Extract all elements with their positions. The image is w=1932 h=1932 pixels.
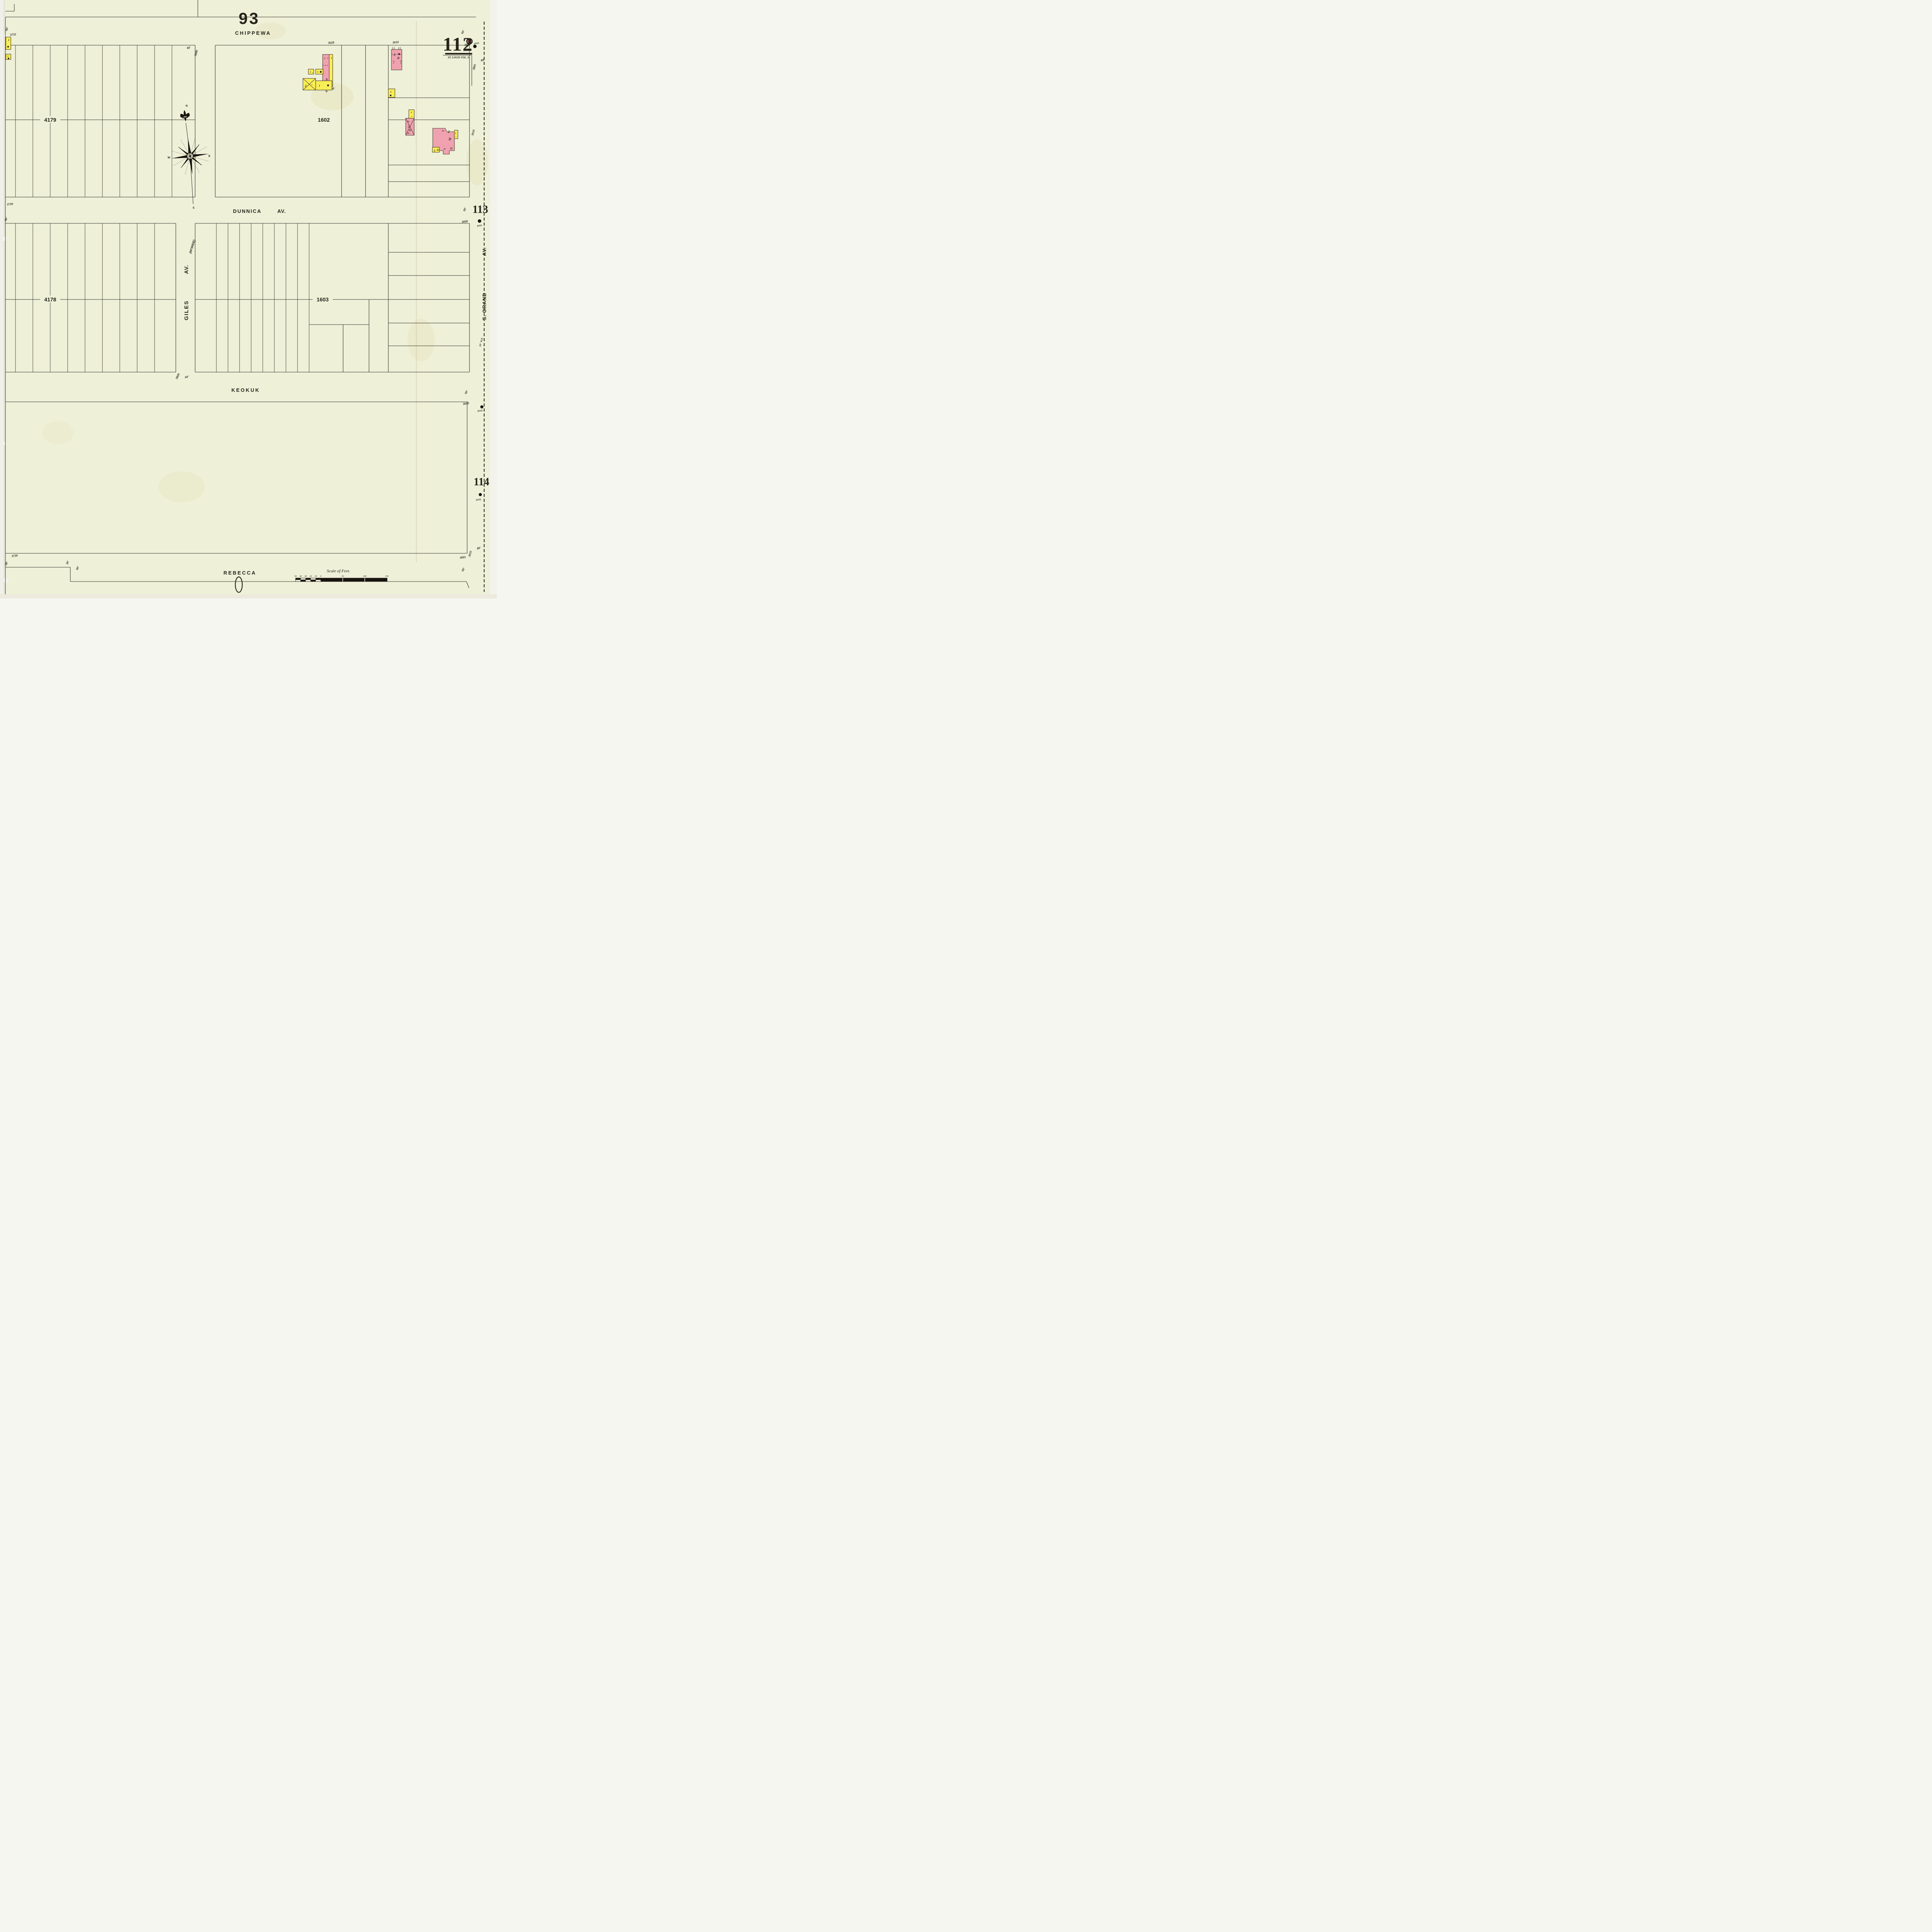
building-footprint <box>388 89 395 97</box>
scale-bar-tick-label: 40 <box>299 575 302 578</box>
paper-stain <box>158 471 205 502</box>
building-label: 1 <box>319 84 320 87</box>
map-canvas: 111xD211x12x12D12812611xBR2BRBR2DBR21x60… <box>0 0 497 599</box>
hydrant-dot-icon <box>480 405 483 408</box>
street-name-label: REBECCA <box>223 570 256 576</box>
building-dot <box>7 46 9 48</box>
scale-bar-checker-cell <box>296 578 301 580</box>
building-label: 6 <box>400 62 401 64</box>
building-label: 1 <box>317 71 318 73</box>
street-name-label: S. GRAND <box>481 293 487 320</box>
hydrant-dot-icon <box>479 493 482 496</box>
building-label: BR <box>407 133 410 134</box>
scale-bar-tick-label: 30 <box>304 575 307 578</box>
block-number-label: 1602 <box>318 117 330 123</box>
paper-nick <box>3 578 9 583</box>
house-number-label: 3628 <box>328 41 335 44</box>
paper-nick <box>3 236 7 241</box>
building-label: BR <box>407 121 410 122</box>
house-number-label: 3732 <box>9 32 16 37</box>
building-dot <box>327 85 329 87</box>
scale-bar-solid-segment <box>321 578 387 582</box>
block-number-label: 4179 <box>44 117 56 123</box>
sheet-number-underline <box>445 53 472 54</box>
building-dot <box>320 71 322 73</box>
scale-bar-tick-label: 50 <box>294 575 297 578</box>
building-dot <box>8 58 9 59</box>
street-name-label: AV. <box>481 247 487 256</box>
street-name-label: CHIPPEWA <box>235 30 271 36</box>
compass-label-north: N <box>185 105 187 107</box>
building-label: D <box>448 137 451 141</box>
scale-bar-checker-cell <box>301 578 306 580</box>
paper-nick <box>3 442 7 446</box>
sheet-number: 112 <box>443 33 473 55</box>
building-footprint <box>316 69 323 74</box>
building-label: 2 <box>447 130 450 134</box>
building-label: 1 <box>7 55 9 58</box>
fold-crease <box>416 21 417 562</box>
building-label: 8 <box>393 62 394 64</box>
scale-bar-checker-cell <box>301 580 306 582</box>
street-name-label: GILES <box>183 300 189 320</box>
building-label: 1 <box>455 133 456 135</box>
scale-bar-checker-cell <box>316 580 321 582</box>
building-dot <box>390 95 391 96</box>
house-number-label: 3739 <box>6 202 13 206</box>
scale-bar-checker-cell <box>296 580 301 582</box>
building-dot <box>398 53 400 55</box>
street-name-label: AV. <box>183 265 189 274</box>
building-label: 1 <box>411 111 412 114</box>
scale-bar-tick-label: 10 <box>315 575 317 578</box>
sanborn-map-sheet: 111xD211x12x12D12812611xBR2BRBR2DBR21x60… <box>0 0 497 599</box>
block-number-label: 4178 <box>44 296 56 303</box>
house-number-label: 3739 <box>11 554 18 558</box>
building-footprint <box>316 81 332 90</box>
scale-bar-checker-cell <box>306 580 311 582</box>
street-name-label: DUNNICA <box>233 208 262 214</box>
building-label: 2 <box>408 125 410 128</box>
house-number-label: 60' <box>185 375 189 379</box>
paper-stain <box>408 319 435 361</box>
compass-label-south: S <box>193 207 195 209</box>
building-label: 1 <box>331 57 332 60</box>
adjacent-sheet-number-right-upper: 113 <box>473 204 488 216</box>
scale-bar-tick-label: 50 <box>342 575 344 578</box>
house-number-label: 3601 <box>459 555 466 560</box>
building-label: D <box>397 56 400 60</box>
compass-label-west: W <box>168 156 170 159</box>
scale-bar-tick-label: 20 <box>310 575 312 578</box>
scale-bar-checker-cell <box>306 578 311 580</box>
map-paper <box>5 0 490 594</box>
hydrant-dot-icon <box>478 219 481 223</box>
building-label: 1 <box>310 71 311 73</box>
building-label: 1 <box>8 39 10 42</box>
paper-left-shadow <box>3 0 5 599</box>
building-label: BR <box>442 130 444 132</box>
scale-bar-title: Scale of Feet. <box>327 569 350 573</box>
scale-bar-checker-cell <box>316 578 321 580</box>
volume-label: ST. LOUIS VOL. 9. <box>448 56 470 59</box>
scale-bar-tick-label: 150 <box>385 575 389 578</box>
building-footprint <box>391 49 402 70</box>
building-label: BR <box>443 148 446 150</box>
building-label: 1 <box>390 91 391 94</box>
paper-stain <box>43 421 73 444</box>
building-label: x <box>455 136 456 138</box>
block-number-label: 1603 <box>316 296 328 303</box>
scale-bar-tick-label: 100 <box>363 575 367 578</box>
street-name-label: KEOKUK <box>231 387 260 393</box>
scale-bar-checker-cell <box>311 578 316 580</box>
compass-label-east: E <box>209 155 211 158</box>
building-label: 1 <box>324 58 325 60</box>
house-number-label: 3600 <box>462 401 469 406</box>
paper-bottom-margin <box>0 594 497 599</box>
building-label: 2 <box>304 84 306 88</box>
adjacent-sheet-number-right-lower: 114 <box>474 476 489 488</box>
paper-right-margin <box>490 0 497 599</box>
scale-bar-checker-cell <box>311 580 316 582</box>
scale-bar-tick-label: 0 <box>320 575 321 578</box>
street-name-label: AV. <box>277 208 286 214</box>
hydrant-dot-icon <box>473 45 477 48</box>
building-label: 2 <box>434 149 435 152</box>
house-number-label: 3610 <box>392 40 399 44</box>
building-label: x <box>327 58 328 60</box>
adjacent-sheet-number-top: 93 <box>239 9 260 27</box>
house-number-label: 3600 <box>461 219 468 224</box>
